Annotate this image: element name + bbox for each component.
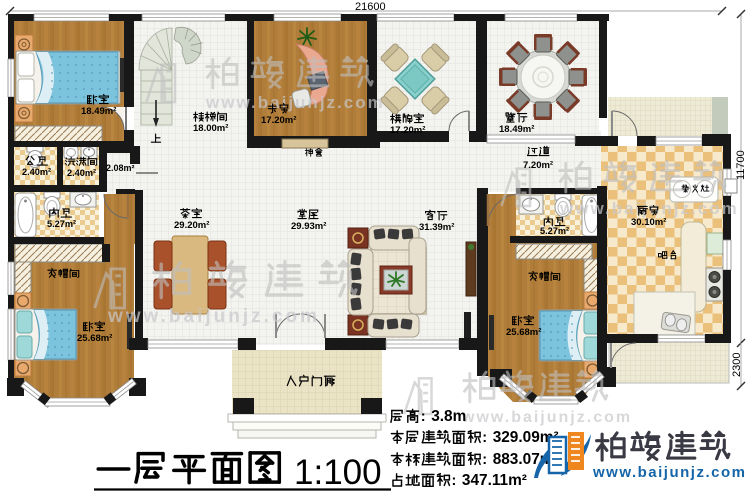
svg-text:3.8m: 3.8m <box>431 408 466 425</box>
svg-text:347.11m²: 347.11m² <box>462 472 527 489</box>
svg-text:www.baijunjz.com: www.baijunjz.com <box>592 464 746 481</box>
svg-text:18.49m²: 18.49m² <box>81 106 116 117</box>
svg-text:25.68m²: 25.68m² <box>506 327 541 338</box>
svg-text:17.20m²: 17.20m² <box>261 115 296 126</box>
svg-text:2.08m²: 2.08m² <box>106 163 135 173</box>
svg-text:2300: 2300 <box>731 353 743 377</box>
svg-text:2.40m²: 2.40m² <box>67 168 96 178</box>
svg-text:7.20m²: 7.20m² <box>523 160 553 171</box>
svg-text::: : <box>482 430 487 446</box>
svg-text:11700: 11700 <box>735 150 747 180</box>
svg-text:1:100: 1:100 <box>294 453 382 492</box>
svg-text:18.00m²: 18.00m² <box>193 123 228 134</box>
svg-text:25.68m²: 25.68m² <box>77 333 112 344</box>
svg-text:www.baijunjz.com: www.baijunjz.com <box>107 306 320 327</box>
svg-text::: : <box>482 452 487 468</box>
svg-text:17.20m²: 17.20m² <box>390 125 425 136</box>
svg-text:www.baijunjz.com: www.baijunjz.com <box>205 93 385 112</box>
svg-text:5.27m²: 5.27m² <box>47 219 76 229</box>
svg-text:29.93m²: 29.93m² <box>291 221 326 232</box>
svg-text:29.20m²: 29.20m² <box>174 220 209 231</box>
svg-text::: : <box>452 473 457 489</box>
svg-text:www.baijunjz.com: www.baijunjz.com <box>461 409 632 426</box>
svg-text:18.49m²: 18.49m² <box>499 124 534 135</box>
svg-text:5.27m²: 5.27m² <box>540 226 569 236</box>
svg-text:30.10m²: 30.10m² <box>631 217 666 228</box>
svg-text:31.39m²: 31.39m² <box>419 222 454 233</box>
svg-text:www.baijunjz.com: www.baijunjz.com <box>559 199 739 218</box>
svg-text:2.40m²: 2.40m² <box>22 167 51 177</box>
svg-text::: : <box>421 409 426 425</box>
svg-text:21600: 21600 <box>355 1 386 13</box>
